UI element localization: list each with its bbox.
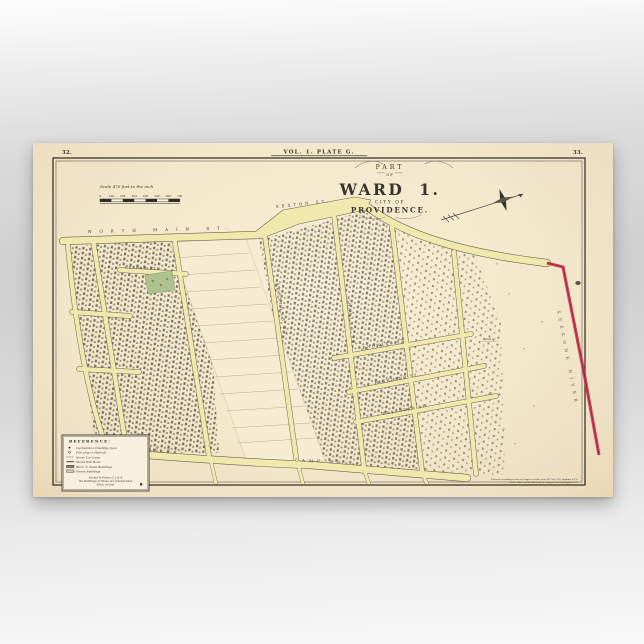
- reference-item-label: represents a Dwelling place: [76, 446, 117, 450]
- scale-ticks: 0 100 200 300 400 500 600 700: [99, 194, 183, 198]
- reference-legend: REFERENCE: represents a Dwelling place F…: [62, 435, 149, 491]
- credit-line: in the Office of the Librarian of Congre…: [510, 481, 579, 484]
- scale-tick: 0: [99, 194, 101, 198]
- reference-item-label: Fire plug or Hydrant: [75, 451, 107, 455]
- reference-item-label: Horse Car Lines: [75, 455, 100, 459]
- stone-mark-icon: [140, 483, 142, 485]
- park-block: [145, 271, 175, 294]
- reference-item-label: Frame Buildings: [75, 470, 101, 474]
- frame-swatch-icon: [67, 470, 75, 472]
- scale-label: Scale 470 feet to the inch: [100, 184, 154, 189]
- scale-tick: 700: [177, 194, 183, 198]
- title-cartouche: PART OF WARD 1. CITY OF PROVIDENCE.: [339, 161, 453, 219]
- scale-bar: Scale 470 feet to the inch 0 100 200 300…: [99, 184, 183, 204]
- riverside-building-mark: [575, 281, 580, 285]
- scale-tick: 400: [143, 194, 149, 198]
- reference-note-line: Brick in blue: [96, 483, 115, 487]
- scale-tick: 200: [120, 194, 126, 198]
- plate-title-rule: [271, 155, 367, 156]
- parcel-label: Lands of: [482, 337, 496, 341]
- title-of: OF: [386, 173, 393, 177]
- reference-title: REFERENCE:: [69, 439, 111, 444]
- scale-tick: 100: [109, 194, 115, 198]
- title-providence: PROVIDENCE.: [351, 206, 429, 215]
- copyright-credit: Entered according to Act of Congress in …: [491, 478, 578, 484]
- plate-title: VOL. 1. PLATE G.: [282, 150, 354, 156]
- reference-item-label: Brick or Stone Buildings: [75, 465, 112, 469]
- scale-tick: 600: [166, 194, 172, 198]
- title-part: PART: [376, 164, 405, 171]
- plate-header: 32. VOL. 1. PLATE G. 33.: [62, 150, 583, 157]
- flourish-icon: [425, 161, 453, 168]
- map-poster: 32. VOL. 1. PLATE G. 33.: [33, 143, 613, 497]
- atlas-map: 32. VOL. 1. PLATE G. 33.: [33, 143, 613, 497]
- flourish-icon: [395, 215, 421, 219]
- scale-tick: 500: [154, 194, 160, 198]
- reference-item-label: Steam Rail Road: [76, 460, 101, 464]
- scale-tick: 300: [132, 194, 138, 198]
- compass-icon: [441, 186, 523, 222]
- ward-boundary: [547, 263, 599, 455]
- brick-swatch-icon: [67, 465, 75, 467]
- dwelling-dot-icon: [69, 447, 71, 449]
- page-background: 32. VOL. 1. PLATE G. 33.: [0, 0, 644, 644]
- page-number-left: 32.: [62, 150, 72, 156]
- page-number-right: 33.: [573, 150, 583, 156]
- title-ward: WARD 1.: [339, 180, 441, 199]
